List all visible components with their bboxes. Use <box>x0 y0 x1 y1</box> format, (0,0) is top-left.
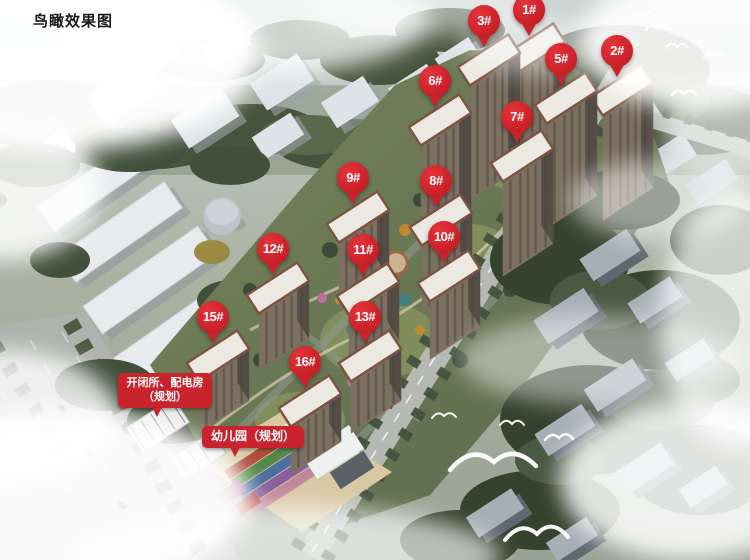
plan-label-pointer <box>230 447 240 457</box>
page-title: 鸟瞰效果图 <box>33 10 113 31</box>
building-marker-label: 13# <box>349 301 381 333</box>
building-marker-7: 7# <box>499 101 535 143</box>
plan-label-line: （规划） <box>123 390 207 404</box>
building-marker-label: 2# <box>601 35 633 67</box>
building-marker-label: 16# <box>289 346 321 378</box>
building-marker-label: 15# <box>197 301 229 333</box>
plan-label-pointer <box>152 407 162 417</box>
building-marker-label: 7# <box>501 101 533 133</box>
building-marker-9: 9# <box>335 162 371 204</box>
plan-label-substation: 开闭所、配电房（规划） <box>118 373 212 408</box>
building-marker-label: 8# <box>420 165 452 197</box>
aerial-scene <box>0 0 750 560</box>
building-marker-5: 5# <box>543 43 579 85</box>
plan-label-kindergarten: 幼儿园（规划） <box>202 426 304 448</box>
plan-label-line: 幼儿园（规划） <box>207 429 299 445</box>
building-marker-8: 8# <box>418 165 454 207</box>
building-marker-label: 11# <box>347 234 379 266</box>
building-marker-label: 1# <box>513 0 545 26</box>
plan-label-line: 开闭所、配电房 <box>123 376 207 390</box>
building-marker-10: 10# <box>426 221 462 263</box>
building-marker-label: 6# <box>419 65 451 97</box>
building-marker-label: 5# <box>545 43 577 75</box>
building-marker-3: 3# <box>466 5 502 47</box>
building-marker-label: 12# <box>257 233 289 265</box>
building-marker-16: 16# <box>287 346 323 388</box>
building-marker-6: 6# <box>417 65 453 107</box>
building-marker-1: 1# <box>511 0 547 36</box>
building-marker-11: 11# <box>345 234 381 276</box>
building-marker-label: 10# <box>428 221 460 253</box>
building-marker-2: 2# <box>599 35 635 77</box>
building-marker-13: 13# <box>347 301 383 343</box>
building-marker-15: 15# <box>195 301 231 343</box>
building-marker-label: 9# <box>337 162 369 194</box>
building-marker-12: 12# <box>255 233 291 275</box>
building-marker-label: 3# <box>468 5 500 37</box>
bird-view-rendering: 鸟瞰效果图 1#2#3#5#6#7#8#9#10#11#12#13#15#16#… <box>0 0 750 560</box>
